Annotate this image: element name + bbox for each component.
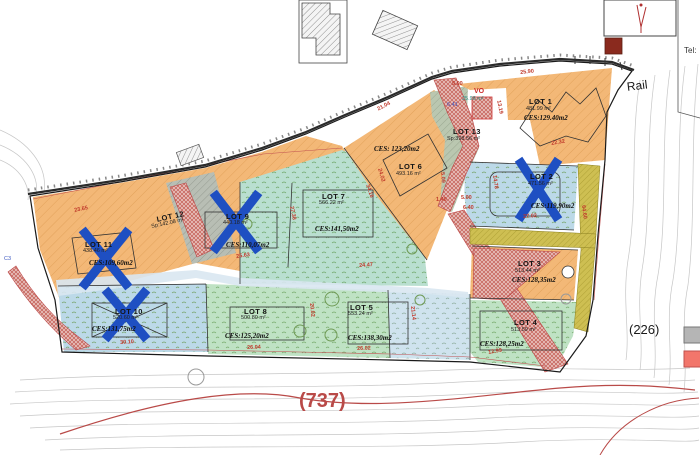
lot-ces-label: CES:141,50m2: [315, 226, 359, 233]
lot-area-label: 520.60 m²: [113, 316, 138, 322]
lot-ces-label: CES:131,75m2: [92, 326, 136, 333]
lot-ces-label: CES:125,20m2: [225, 333, 269, 340]
dimension-label: 5.00: [452, 82, 463, 88]
dimension-label: 14.78: [491, 175, 498, 189]
lot-ces-label: CES:119,90m2: [531, 203, 574, 210]
dimension-label: 26.02: [357, 347, 371, 353]
dimension-label: 21.14: [409, 306, 416, 320]
lot-ces-label: CES:109,60m2: [89, 260, 133, 267]
lot-name-label: LOT 2: [530, 173, 553, 181]
lot-name-label: LOT 13: [453, 128, 481, 136]
dimension-label: 21.04: [377, 102, 392, 113]
lot-area-label: 438.46 m²: [83, 249, 108, 255]
lot-area-label: 553.24 m²: [348, 312, 373, 318]
dimension-label: 1.40: [436, 198, 447, 204]
dimension-label: 5.00: [461, 196, 472, 202]
tel-label: Tel:: [684, 46, 696, 55]
lot-ces-label: CES:129.40m2: [524, 115, 568, 122]
lot-area-label: 493.16 m²: [396, 172, 421, 178]
lot-sp-label: Sp:398.56 m²: [447, 137, 480, 143]
dimension-label: 30.10: [120, 340, 134, 346]
site-plan-page: LOT 1481.99 m²CES:129.40m2LOT 2471.56 m²…: [0, 0, 700, 455]
dimension-label: 64.60: [580, 205, 587, 219]
lot-name-label: LOT 4: [514, 319, 537, 327]
dimension-label: 24.47: [359, 263, 373, 269]
dimension-label: 27.02: [523, 214, 537, 220]
dimension-label: 22.32: [551, 140, 566, 148]
lot-ces-label: CES:128,35m2: [512, 277, 556, 284]
dimension-label: 27.38: [288, 206, 296, 221]
dimension-label: 25.90: [520, 70, 534, 77]
lot-area-label: 471.56 m²: [528, 182, 553, 188]
lot-name-label: LOT 1: [529, 98, 552, 106]
vo-area-label: VO: [474, 88, 484, 95]
measure-note-641: 6.41: [447, 103, 458, 109]
contour-737-label: (737): [299, 390, 346, 413]
lot-area-label: 500.80 m²: [241, 316, 266, 322]
dimension-label: 34.16: [364, 184, 373, 199]
lot-area-label: 513.44 m²: [515, 269, 540, 275]
vo-area-size-label: 25.98 m²: [462, 97, 484, 103]
lot-area-label: 481.99 m²: [526, 107, 551, 113]
dimension-label: 13.19: [495, 100, 503, 115]
lot-ces-label: CES: 123,20m2: [374, 146, 420, 153]
parcel-226-label: (226): [629, 322, 659, 337]
lot-ces-label: CES:138,30m2: [348, 335, 392, 342]
rail-label: Rail: [626, 77, 648, 93]
grid-ref-label: C3: [4, 257, 11, 263]
dimension-label: 5.09: [439, 172, 445, 183]
dimension-label: 24.02: [376, 168, 385, 183]
lot-area-label: 440.18 m²: [223, 221, 248, 227]
dimension-label: 25.63: [236, 253, 250, 260]
dimension-label: 26.04: [247, 346, 261, 352]
dimension-label: 12.99: [488, 349, 503, 357]
lot-area-label: 566.22 m²: [319, 201, 344, 207]
lot-name-label: LOT 6: [399, 163, 422, 171]
lot-ces-label: CES:110,07m2: [226, 242, 269, 249]
lot-ces-label: CES:128,25m2: [480, 341, 524, 348]
dimension-label: 6.40: [463, 206, 474, 212]
dimension-label: 20.02: [308, 303, 315, 317]
dimension-label: 23.65: [74, 206, 89, 214]
lot-name-label: LOT 3: [518, 260, 541, 268]
lot-area-label: 513.59 m²: [511, 328, 536, 334]
map-text-layer: LOT 1481.99 m²CES:129.40m2LOT 2471.56 m²…: [0, 0, 700, 455]
